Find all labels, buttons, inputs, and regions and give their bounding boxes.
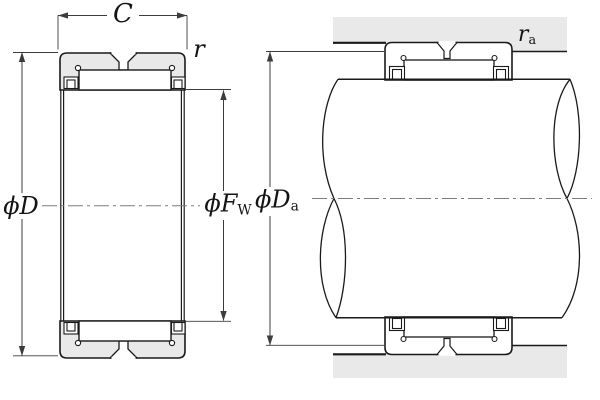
housing-bottom-shoulder [511,346,567,355]
roller-end-circle [75,65,80,70]
mounted-rollers-bottom [404,317,494,337]
roller-end-circle [75,340,80,345]
mounted-rollers-top [404,60,494,80]
label-outer-diameter: ϕD [3,194,39,218]
roller-end-circle [492,56,497,61]
roller-end-circle [169,340,174,345]
roller-end-circle [401,56,406,61]
label-abutment-diameter: ϕDa [255,188,299,215]
label-raceway-main: ϕF [204,190,237,218]
label-abutment-main: ϕD [255,186,291,214]
bearing-section-view [42,53,200,358]
label-raceway-diameter: ϕFW [204,192,251,219]
shaft-break-left [323,79,338,198]
label-fillet-sub: a [528,33,536,48]
shaft-break-right [562,199,580,318]
rollers-top [79,70,171,90]
label-fillet-main: r [518,22,529,47]
shaft-break-right-loop [554,79,580,198]
rollers-bottom [79,321,171,341]
label-width-C: C [113,1,133,27]
shaft-break-left-loop [320,199,345,318]
label-fillet-radius: ra [518,24,536,48]
label-raceway-sub: W [237,203,251,219]
engineering-drawing: C r ϕD ϕFW ϕDa ra [0,0,600,400]
label-abutment-sub: a [291,199,299,215]
mounting-view [312,17,592,378]
housing-bottom [333,355,567,379]
roller-end-circle [401,337,406,342]
drawing-canvas [0,0,600,400]
roller-end-circle [169,65,174,70]
label-chamfer-r: r [193,37,204,61]
roller-end-circle [492,337,497,342]
